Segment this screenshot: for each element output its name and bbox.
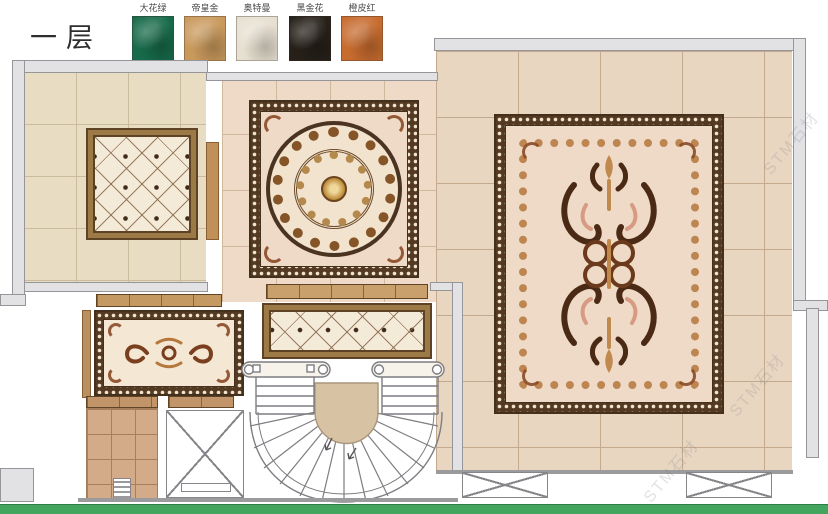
wall-center-top (206, 72, 438, 81)
elevator-door-sill (181, 483, 231, 492)
legend-item-dihuangjin: 帝皇金 (179, 1, 231, 61)
window-symbol-right (686, 472, 772, 498)
material-swatch-gold (184, 16, 226, 61)
material-swatch-green (132, 16, 174, 61)
legend-label: 帝皇金 (179, 1, 231, 14)
tile-band-rug-room (96, 294, 222, 307)
corner-scroll-ornament (384, 115, 404, 135)
legend-item-dahualv: 大花绿 (127, 1, 179, 61)
corner-scroll-ornament (264, 115, 284, 135)
legend-label: 橙皮红 (336, 1, 388, 14)
rug-center-motif (109, 328, 229, 378)
inlay-medallion-square (249, 100, 419, 278)
floor-plan-canvas: 一层 大花绿 帝皇金 奥特曼 黑金花 橙皮红 (0, 0, 828, 514)
medallion-field (260, 111, 408, 267)
bottom-green-bar (0, 505, 828, 514)
wall-right-lower (806, 308, 819, 458)
wall-left-notch (0, 294, 26, 306)
tile-band-elevator-header (168, 396, 234, 408)
door-threshold-left (206, 142, 219, 240)
material-swatch-orange (341, 16, 383, 61)
wall-right-top (434, 38, 806, 51)
rug-field (103, 319, 235, 387)
door-threshold-stripes (113, 478, 131, 499)
carpet-field (505, 125, 713, 403)
corner-scroll-ornament (384, 243, 404, 263)
window-symbol-left (462, 472, 548, 498)
diamond-tile-field (269, 310, 425, 352)
corner-scroll-ornament (264, 243, 284, 263)
legend-label: 大花绿 (127, 1, 179, 14)
inlay-rug (94, 310, 244, 396)
carpet-center-motif (534, 149, 684, 379)
wall-bottom-left-block (0, 468, 34, 502)
page-title: 一层 (30, 16, 102, 55)
wall-trim-rug-room (82, 310, 91, 398)
wall-stair-right (452, 282, 463, 472)
legend-item-aoteman: 奥特曼 (231, 1, 283, 61)
staircase (236, 356, 448, 506)
wall-top-left (12, 60, 208, 73)
inlay-diamond-square-left (86, 128, 198, 240)
legend-label: 奥特曼 (231, 1, 283, 14)
diamond-tile-field (93, 135, 191, 233)
wall-left (12, 60, 25, 298)
inlay-carpet (494, 114, 724, 414)
legend-label: 黑金花 (284, 1, 336, 14)
inlay-diamond-runner (262, 303, 432, 359)
wall-under-left-room (24, 282, 208, 292)
medallion-center-rosette (321, 176, 347, 202)
wall-right (793, 38, 806, 306)
tile-band-under-hall (266, 284, 428, 299)
legend-item-heijinhua: 黑金花 (284, 1, 336, 61)
material-swatch-black (289, 16, 331, 61)
tile-band-patch-header (86, 396, 158, 408)
material-swatch-cream (236, 16, 278, 61)
legend-item-chengpihong: 橙皮红 (336, 1, 388, 61)
elevator-shaft (166, 410, 244, 498)
wall-bottom-line (78, 498, 458, 502)
